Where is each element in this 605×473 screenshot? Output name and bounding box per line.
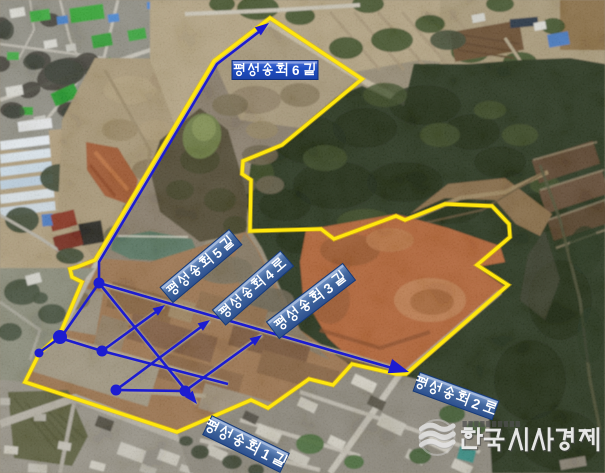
svg-text:6: 6 (292, 63, 300, 78)
